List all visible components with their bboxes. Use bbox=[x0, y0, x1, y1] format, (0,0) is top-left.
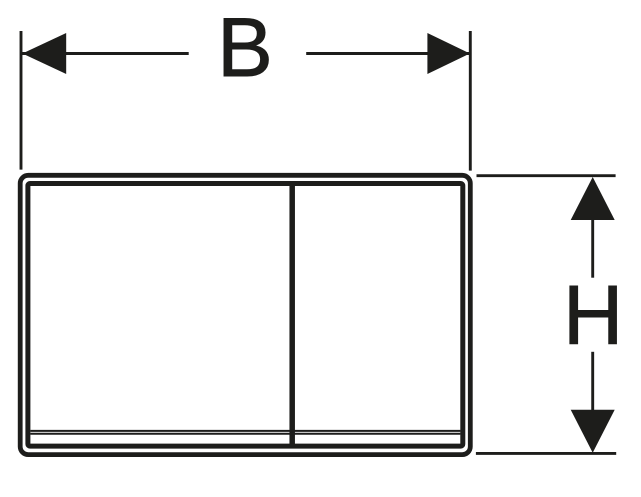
svg-text:H: H bbox=[563, 268, 623, 362]
svg-text:B: B bbox=[217, 0, 273, 94]
